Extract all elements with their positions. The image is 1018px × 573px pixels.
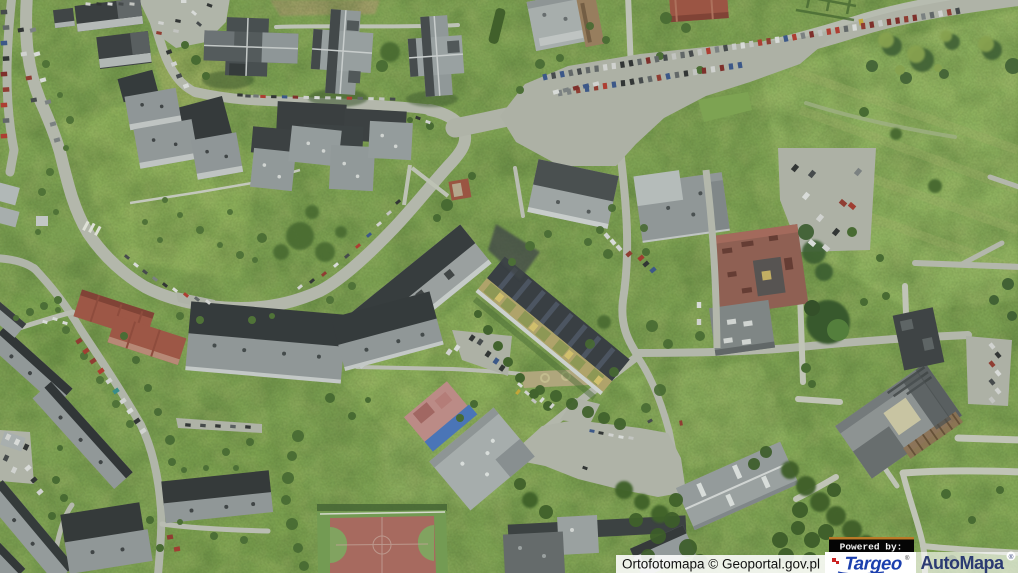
svg-text:®: ® bbox=[905, 555, 910, 562]
svg-text:Targeo: Targeo bbox=[843, 553, 905, 573]
svg-text:®: ® bbox=[1009, 553, 1014, 561]
svg-text:Powered by:: Powered by: bbox=[840, 542, 903, 553]
svg-text:AutoMapa: AutoMapa bbox=[921, 553, 1005, 573]
svg-text:Ortofotomapa © Geoportal.gov.p: Ortofotomapa © Geoportal.gov.pl bbox=[622, 557, 820, 572]
